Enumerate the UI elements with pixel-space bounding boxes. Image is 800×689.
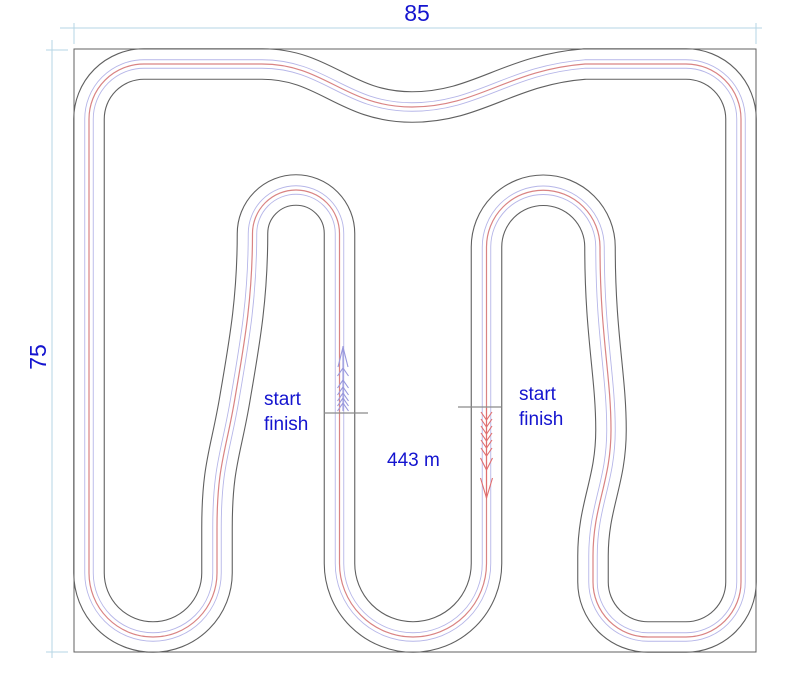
racing-line-blue [89,64,741,637]
start-finish-label-right-line2: finish [519,409,563,430]
track-outline [89,64,741,637]
track-drawing: 85 75 start finish start finish 443 m [0,0,800,684]
boundary-rect [74,49,756,652]
racing-line-red [89,64,741,637]
start-finish-label-left-line2: finish [264,414,308,435]
height-dimension-label: 75 [25,344,51,370]
start-finish-label-left-line1: start [264,389,302,410]
track-drawing-page: 85 75 start finish start finish 443 m [0,0,800,684]
width-dimension-label: 85 [404,0,430,26]
start-finish-label-right-line1: start [519,384,557,405]
width-dimension-line [60,23,762,44]
track-length-label: 443 m [387,450,440,471]
